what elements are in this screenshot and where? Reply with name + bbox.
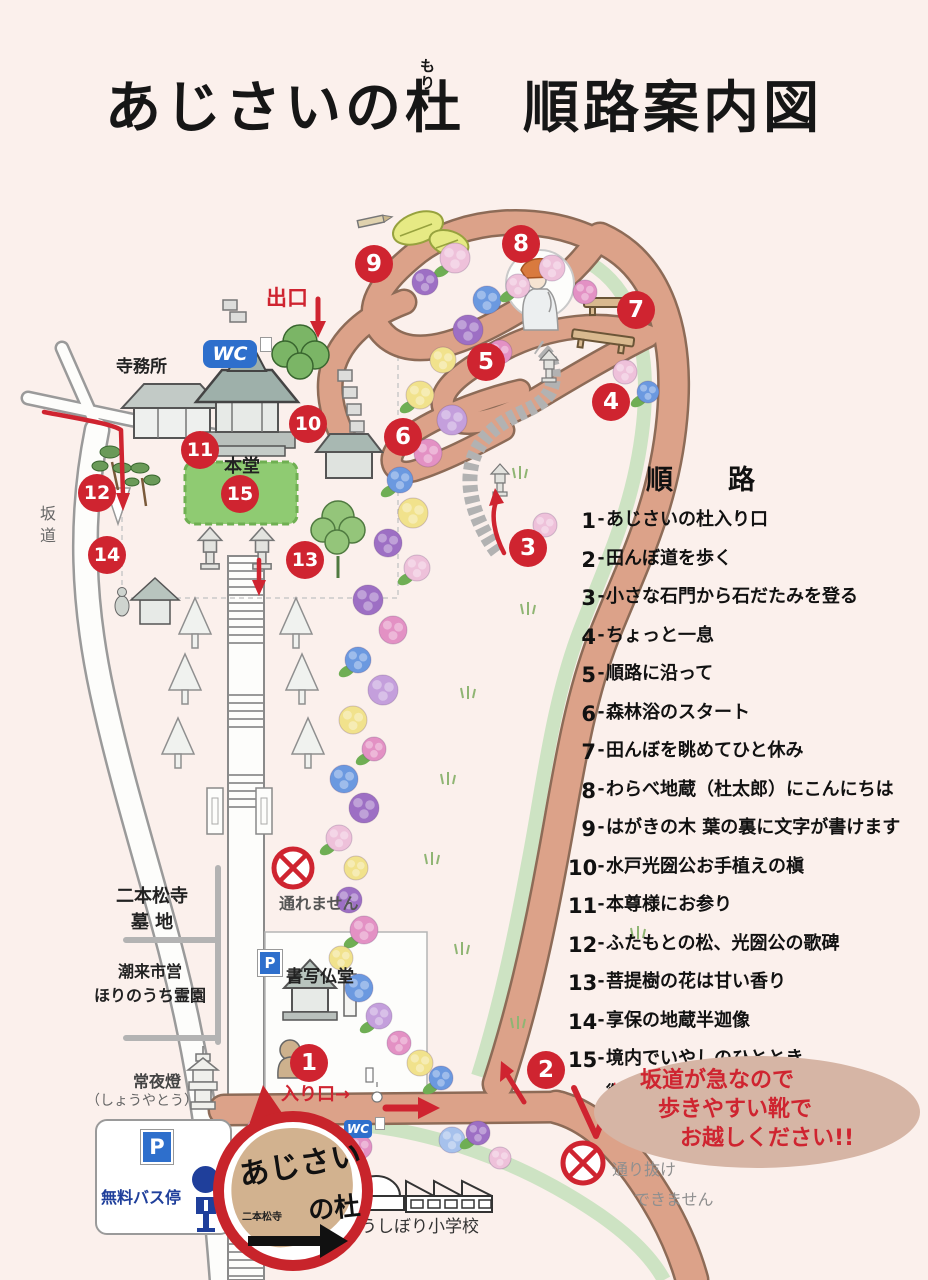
route-item-11: 11-本尊様にお参り [568,896,924,917]
route-item-3: 3-小さな石門から石だたみを登る [568,588,924,609]
map-marker-6: 6 [384,418,422,456]
no-pass-label: 通れません [279,890,359,914]
notice-line2: 歩きやすい靴で [658,1095,920,1124]
no-through-label-1: 通り抜け [612,1156,676,1180]
title-part1: あじさいの [105,78,405,140]
no-through-label-2: できません [634,1186,714,1210]
municipal-label-1: 潮来市営 [80,958,220,982]
title-mori: もり 杜 [405,78,465,140]
route-item-8: 8-わらべ地蔵（杜太郎）にこんにちは [568,781,924,802]
notice-callout: 坂道が急なので 歩きやすい靴で お越しください!! [594,1056,920,1168]
logo-line2: の杜 [306,1185,362,1227]
cone-tree [286,654,318,704]
route-item-2: 2-田んぼ道を歩く [568,550,924,571]
slope-label: 坂道 [34,505,58,549]
no-entry-sign [274,849,312,887]
page-title: あじさいの もり 杜 順路案内図 [0,78,928,140]
bus-stop-label: 無料バス停 [101,1184,181,1208]
route-heading: 順 路 [646,458,924,497]
cone-tree [280,598,312,648]
lantern-label-2: （しょうやとう） [86,1090,198,1110]
notice-line3: お越しください!! [680,1124,920,1153]
route-list-panel: 順 路 1-あじさいの杜入り口2-田んぼ道を歩く3-小さな石門から石だたみを登る… [568,458,924,1117]
map-marker-2: 2 [527,1051,565,1089]
title-part2: 順路案内図 [523,78,823,140]
municipal-label-2: ほりのうち霊園 [70,982,230,1006]
route-item-1: 1-あじさいの杜入り口 [568,511,924,532]
wc-sign-main: WC [203,340,257,368]
route-list: 1-あじさいの杜入り口2-田んぼ道を歩く3-小さな石門から石だたみを登る4-ちょ… [568,511,924,1103]
route-item-4: 4-ちょっと一息 [568,627,924,648]
cemetery-label-2: 墓 地 [102,908,202,934]
stone-lantern [198,527,221,569]
bus-stop-icon-pole [203,1214,209,1228]
main-hall-label: 本堂 [224,452,260,478]
map-marker-14: 14 [88,536,126,574]
route-item-14: 14-享保の地蔵半迦像 [568,1012,924,1033]
route-item-5: 5-順路に沿って [568,665,924,686]
ajisai-logo-badge: あじさい の杜 二本松寺 [213,1111,373,1271]
map-marker-9: 9 [355,245,393,283]
map-marker-3: 3 [509,529,547,567]
logo-temple-name: 二本松寺 [242,1208,282,1223]
wc-tag [260,337,272,352]
logo-arrow [248,1236,322,1246]
entrance-label: 入り口→ [281,1080,350,1106]
map-marker-1: 1 [290,1044,328,1082]
map-marker-13: 13 [286,541,324,579]
map-marker-12: 12 [78,474,116,512]
route-item-7: 7-田んぼを眺めてひと休み [568,742,924,763]
route-item-9: 9-はがきの木 葉の裏に文字が書けます [568,819,924,840]
cone-tree [162,718,194,768]
cone-tree [292,718,324,768]
map-marker-10: 10 [289,405,327,443]
cemetery-label-1: 二本松寺 [102,882,202,908]
map-marker-5: 5 [467,343,505,381]
cone-tree [169,654,201,704]
map-marker-11: 11 [181,431,219,469]
bus-stop-icon-slot [204,1200,208,1211]
temple-office-label: 寺務所 [116,352,167,377]
route-item-12: 12-ふたもとの松、光圀公の歌碑 [568,935,924,956]
parking-sign-small: P [258,950,282,976]
lantern-label-1: 常夜燈 [133,1068,181,1092]
route-item-6: 6-森林浴のスタート [568,704,924,725]
copy-hall-label: 書写仏堂 [286,962,354,987]
cone-tree [179,598,211,648]
map-marker-15: 15 [221,475,259,513]
bus-stop-icon-base [197,1228,215,1232]
exit-label: 出口 [266,282,308,312]
route-item-10: 10-水戸光圀公お手植えの槇 [568,858,924,879]
title-furigana: もり [420,58,450,91]
map-marker-4: 4 [592,383,630,421]
parking-sign-large: P [141,1130,173,1164]
stone-lantern [491,464,509,496]
wc-tag [375,1117,385,1130]
logo-arrow-head [320,1224,348,1258]
map-marker-7: 7 [617,291,655,329]
route-item-13: 13-菩提樹の花は甘い香り [568,973,924,994]
no-entry-sign [563,1143,603,1183]
map-marker-8: 8 [502,225,540,263]
school-label: うしぼり小学校 [360,1212,479,1237]
map-canvas: あじさいの もり 杜 順路案内図 出口 寺務所 本堂 坂道 通れません 書写仏堂… [0,0,928,1280]
notice-line1: 坂道が急なので [640,1066,920,1095]
